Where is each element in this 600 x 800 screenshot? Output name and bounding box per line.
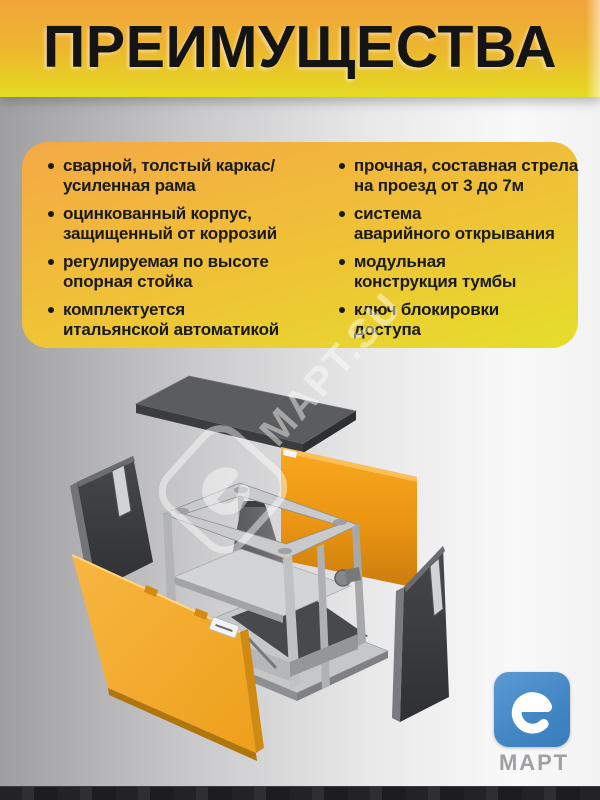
bottom-strip — [0, 786, 600, 800]
item-line: комплектуется — [63, 300, 339, 320]
front-panel-label — [209, 617, 240, 639]
list-item: регулируемая по высоте опорная стойка — [48, 252, 339, 292]
emart-logo: МАРТ — [494, 672, 574, 776]
front-orange-panel — [72, 555, 264, 761]
page-title: ПРЕИМУЩЕСТВА — [43, 13, 557, 85]
item-line: ключ блокировки — [354, 300, 578, 320]
left-side-panel — [70, 456, 153, 594]
watermark-emart-icon — [148, 415, 298, 565]
list-item: сварной, толстый каркас/ усиленная рама — [48, 156, 339, 196]
top-ring — [163, 483, 358, 559]
logo-text: МАРТ — [494, 750, 574, 776]
item-line: модульная — [354, 252, 578, 272]
emart-logo-icon — [494, 672, 570, 747]
list-item: система аварийного открывания — [339, 204, 578, 244]
gearmotor — [335, 570, 351, 586]
list-item: оцинкованный корпус, защищенный от корро… — [48, 204, 339, 244]
list-item: комплектуется итальянской автоматикой — [48, 300, 339, 340]
item-line: доступа — [354, 320, 578, 340]
item-line: сварной, толстый каркас/ — [63, 156, 339, 176]
promo-page: ПРЕИМУЩЕСТВА сварной, толстый каркас/ ус… — [0, 0, 600, 800]
list-item: модульная конструкция тумбы — [339, 252, 578, 292]
item-line: аварийного открывания — [354, 224, 578, 244]
panel-label — [283, 449, 297, 458]
item-line: оцинкованный корпус, — [63, 204, 339, 224]
item-line: на проезд от 3 до 7м — [354, 176, 578, 196]
item-line: система — [354, 204, 578, 224]
item-line: итальянской автоматикой — [63, 320, 339, 340]
item-line: защищенный от коррозий — [63, 224, 339, 244]
list-item: ключ блокировки доступа — [339, 300, 578, 340]
right-side-panel — [392, 546, 449, 722]
advantages-card: сварной, толстый каркас/ усиленная рама … — [22, 142, 578, 348]
base-mat — [231, 590, 368, 665]
item-line: опорная стойка — [63, 272, 339, 292]
list-item: прочная, составная стрела на проезд от 3… — [339, 156, 578, 196]
item-line: усиленная рама — [63, 176, 339, 196]
rear-orange-panel — [281, 447, 417, 588]
letter-e-icon — [504, 682, 560, 738]
header-banner: ПРЕИМУЩЕСТВА — [0, 0, 600, 97]
panel-slot — [112, 465, 131, 517]
panel-slot — [430, 558, 443, 616]
letter-e-icon — [178, 444, 268, 534]
item-line: конструкция тумбы — [354, 272, 578, 292]
drive-housing — [226, 507, 290, 588]
top-lid-panel — [136, 376, 356, 453]
item-line: регулируемая по высоте — [63, 252, 339, 272]
advantages-list-left: сварной, толстый каркас/ усиленная рама … — [48, 156, 339, 348]
advantages-list-right: прочная, составная стрела на проезд от 3… — [339, 156, 578, 348]
item-line: прочная, составная стрела — [354, 156, 578, 176]
cabinet-frame — [163, 483, 388, 701]
